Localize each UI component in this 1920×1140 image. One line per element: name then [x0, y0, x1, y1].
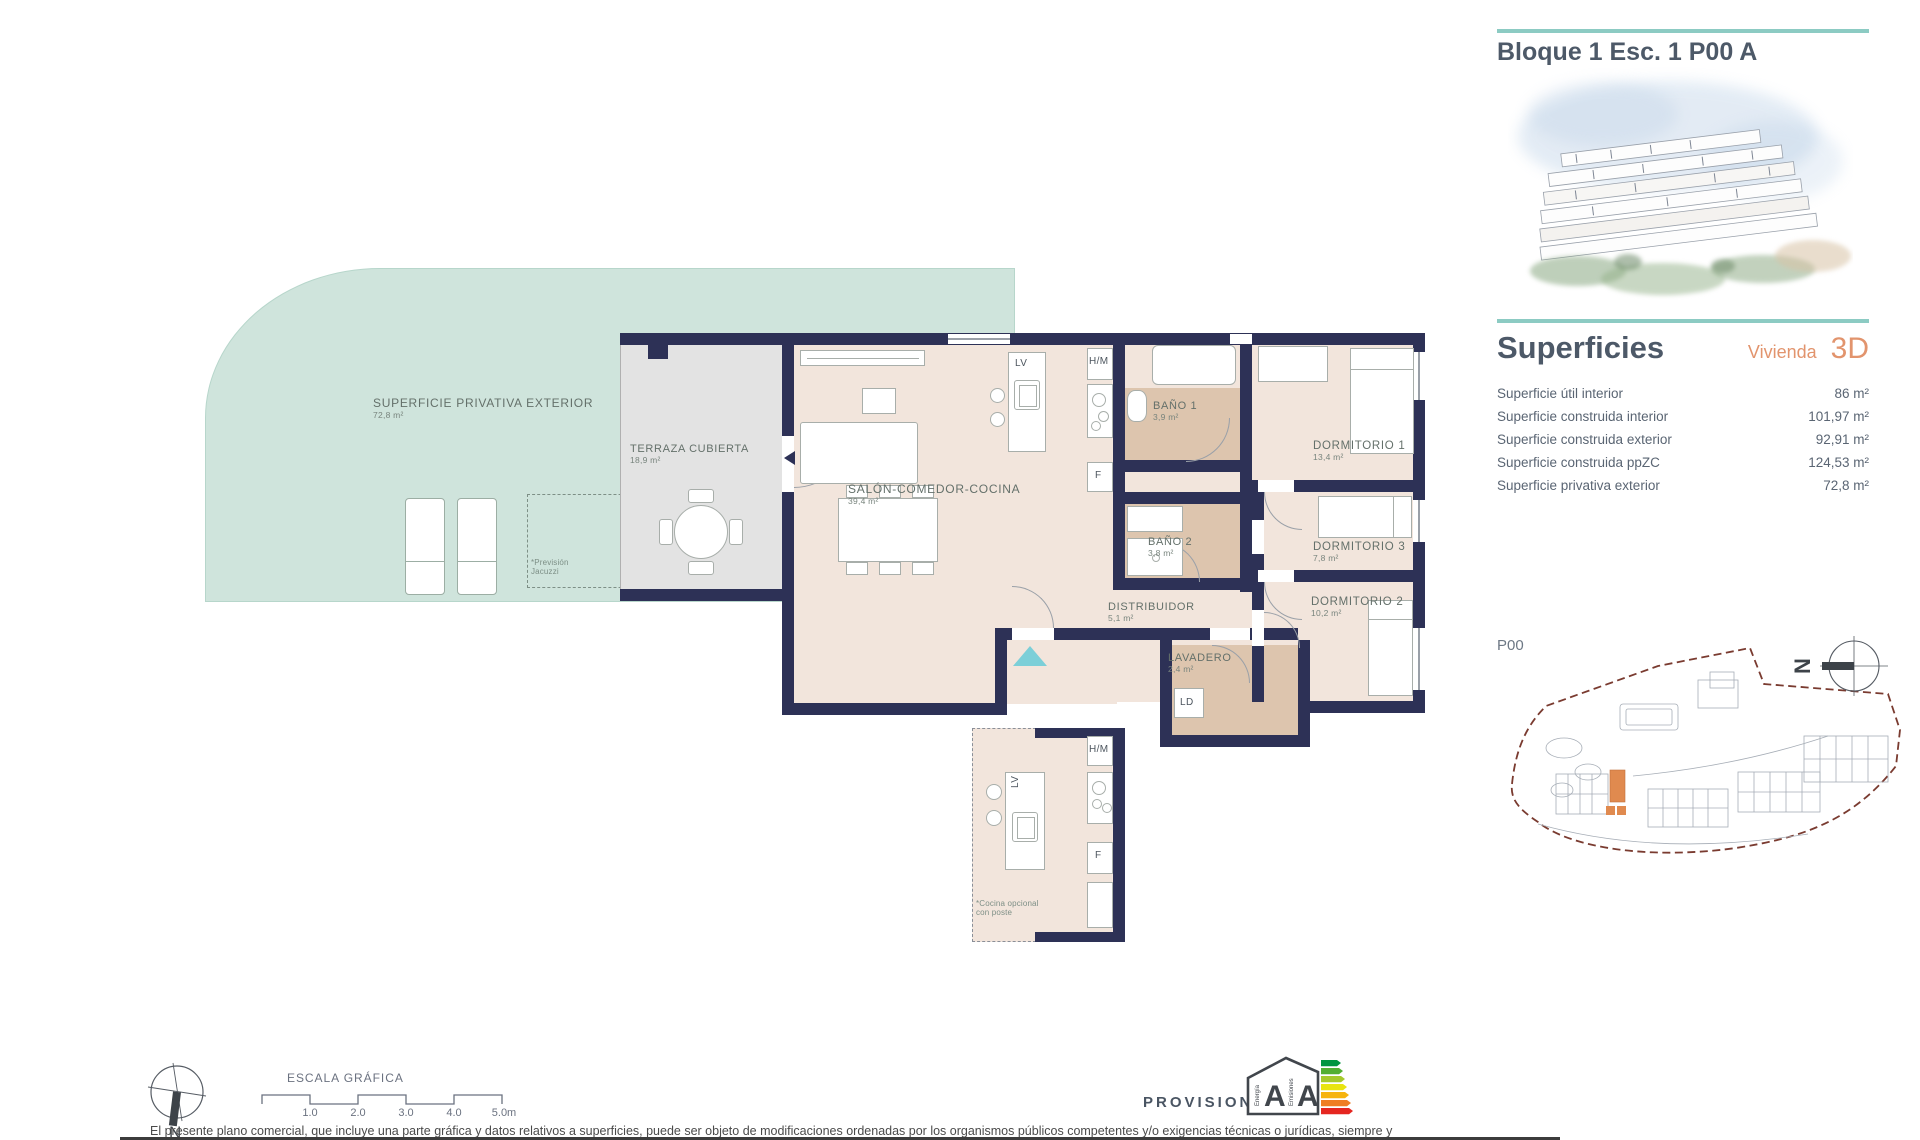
wall [1113, 738, 1125, 932]
door-opening [1258, 570, 1294, 582]
toilet [1127, 390, 1147, 422]
svg-text:A: A [1264, 1080, 1286, 1113]
hob-burner [990, 412, 1005, 427]
superficies-heading: Superficies [1497, 330, 1664, 366]
sun-lounger [457, 498, 497, 595]
floor-plan-sheet: SUPERFICIE PRIVATIVA EXTERIOR 72,8 m² *P… [0, 0, 1920, 1140]
dwelling-label: Vivienda [1748, 342, 1817, 363]
window-glazing [1418, 500, 1420, 542]
disclaimer-text: El presente plano comercial, que incluye… [150, 1124, 1570, 1138]
row-value: 124,53 m² [1808, 451, 1869, 474]
wall [1113, 333, 1125, 590]
table-row: Superficie construida ppZC 124,53 m² [1497, 451, 1869, 474]
terrace-chair [688, 561, 714, 575]
wall [1298, 701, 1425, 713]
scale-tick: 4.0 [446, 1107, 461, 1119]
window-glazing [948, 338, 1010, 340]
row-label: Superficie construida ppZC [1497, 451, 1660, 474]
row-value: 92,91 m² [1816, 428, 1869, 451]
bath1-label: BAÑO 1 3,9 m² [1153, 400, 1197, 422]
window [1230, 334, 1252, 344]
window-glazing [1418, 628, 1420, 690]
site-plan: N [1498, 624, 1916, 872]
exterior-room-name: SUPERFICIE PRIVATIVA EXTERIOR [373, 396, 593, 410]
dining-chair [846, 562, 868, 575]
scale-bar [260, 1092, 506, 1105]
scale-title: ESCALA GRÁFICA [287, 1071, 404, 1085]
divider-line [1497, 29, 1869, 33]
optional-kitchen-dashed-edge [972, 941, 1036, 942]
table-row: Superficie privativa exterior 72,8 m² [1497, 474, 1869, 497]
row-value: 86 m² [1834, 382, 1869, 405]
dishwasher-label: LV [1010, 776, 1021, 788]
sofa [800, 422, 918, 484]
energy-scale-bars [1321, 1060, 1353, 1114]
cooktop-box [1087, 772, 1113, 824]
wall [782, 703, 1007, 715]
terrace-chair [659, 519, 673, 545]
table-row: Superficie construida exterior 92,91 m² [1497, 428, 1869, 451]
wardrobe [1258, 346, 1328, 382]
hall-label: DISTRIBUIDOR 5,1 m² [1108, 601, 1195, 623]
floor-plan: SUPERFICIE PRIVATIVA EXTERIOR 72,8 m² *P… [0, 0, 1490, 1000]
superficies-table: Superficie útil interior 86 m² Superfici… [1497, 382, 1869, 497]
fridge-label: F [1095, 470, 1102, 481]
wall [620, 333, 1425, 345]
wall [1240, 333, 1252, 592]
building-render [1508, 66, 1853, 311]
wall [995, 628, 1007, 715]
wall [1125, 460, 1240, 472]
laundry-label: LAVADERO 2,4 m² [1168, 652, 1232, 674]
energy-rating-icon: Energía A Emisiones A [1238, 1048, 1360, 1122]
row-value: 101,97 m² [1808, 405, 1869, 428]
bedroom1-label: DORMITORIO 1 13,4 m² [1313, 440, 1405, 463]
scale-tick: 1.0 [302, 1107, 317, 1119]
fridge-label: F [1095, 850, 1102, 861]
door-opening [1252, 520, 1264, 554]
bedroom2-label: DORMITORIO 2 10,2 m² [1311, 596, 1403, 619]
dining-chair [912, 562, 934, 575]
jacuzzi-note: *Previsión Jacuzzi [531, 558, 569, 576]
hob-burner [986, 784, 1002, 800]
svg-text:N: N [1790, 658, 1815, 674]
scale-tick: 5.0m [492, 1107, 516, 1119]
row-label: Superficie construida interior [1497, 405, 1668, 428]
living-label: SALÓN-COMEDOR-COCINA 39,4 m² [848, 483, 1020, 507]
row-label: Superficie construida exterior [1497, 428, 1672, 451]
terrace-door-arrow-icon [784, 451, 795, 465]
entrance-opening [1012, 628, 1054, 640]
optional-kitchen-dashed-edge [972, 728, 1036, 729]
cooktop-box [1087, 384, 1113, 438]
counter-box [1087, 882, 1113, 928]
terrace-table [674, 505, 728, 559]
table-row: Superficie útil interior 86 m² [1497, 382, 1869, 405]
terrace-chair [729, 519, 743, 545]
kitchen-sink [1014, 380, 1040, 410]
optional-kitchen-note: *Cocina opcional con poste [976, 899, 1039, 917]
door-opening [1210, 628, 1250, 640]
terrace-chair [688, 489, 714, 503]
hob-burner [986, 810, 1002, 826]
vanity [1127, 506, 1183, 532]
washer-dryer-label: H/M [1089, 744, 1109, 755]
svg-text:A: A [1297, 1080, 1319, 1113]
terrace-label: TERRAZA CUBIERTA 18,9 m² [630, 443, 749, 465]
divider-line [1497, 319, 1869, 323]
bed [1318, 496, 1412, 538]
wall [1035, 932, 1125, 942]
door-opening [1252, 610, 1264, 646]
optional-kitchen-dashed-edge [972, 728, 973, 942]
kitchen-sink [1012, 812, 1038, 842]
bed [1350, 348, 1414, 454]
hob-burner [990, 388, 1005, 403]
wall [782, 492, 794, 715]
dining-chair [879, 562, 901, 575]
row-value: 72,8 m² [1823, 474, 1869, 497]
entrance-marker-icon [1013, 646, 1047, 666]
wall [782, 344, 794, 436]
bathtub [1152, 345, 1236, 385]
sun-lounger [405, 498, 445, 595]
tv-sideboard [800, 350, 925, 366]
exterior-label: SUPERFICIE PRIVATIVA EXTERIOR 72,8 m² [373, 397, 593, 421]
row-label: Superficie privativa exterior [1497, 474, 1660, 497]
wall [1298, 640, 1310, 747]
row-label: Superficie útil interior [1497, 382, 1623, 405]
exterior-room-area: 72,8 m² [373, 411, 593, 421]
scale-tick-labels: 1.0 2.0 3.0 4.0 5.0m [260, 1107, 520, 1121]
window-glazing [1418, 352, 1420, 400]
table-row: Superficie construida interior 101,97 m² [1497, 405, 1869, 428]
bath2-label: BAÑO 2 3,8 m² [1148, 536, 1192, 558]
superficies-header: Superficies Vivienda 3D [1497, 330, 1869, 366]
wall [1125, 492, 1240, 504]
door-opening [1258, 480, 1294, 492]
page-title: Bloque 1 Esc. 1 P00 A [1497, 38, 1757, 67]
site-highlight-unit [1606, 770, 1626, 815]
dishwasher-label: LV [1015, 358, 1027, 369]
scale-tick: 3.0 [398, 1107, 413, 1119]
scale-tick: 2.0 [350, 1107, 365, 1119]
washer-dryer-label: H/M [1089, 356, 1109, 367]
wall [620, 589, 794, 601]
bedroom3-label: DORMITORIO 3 7,8 m² [1313, 541, 1405, 564]
dwelling-code: 3D [1831, 332, 1869, 366]
dining-table [838, 498, 938, 562]
wall [1160, 735, 1310, 747]
coffee-table [862, 388, 896, 414]
svg-text:Energía: Energía [1255, 1084, 1261, 1106]
dryer-label: LD [1180, 697, 1194, 708]
wall-column [648, 333, 668, 359]
svg-text:Emisiones: Emisiones [1289, 1078, 1295, 1106]
